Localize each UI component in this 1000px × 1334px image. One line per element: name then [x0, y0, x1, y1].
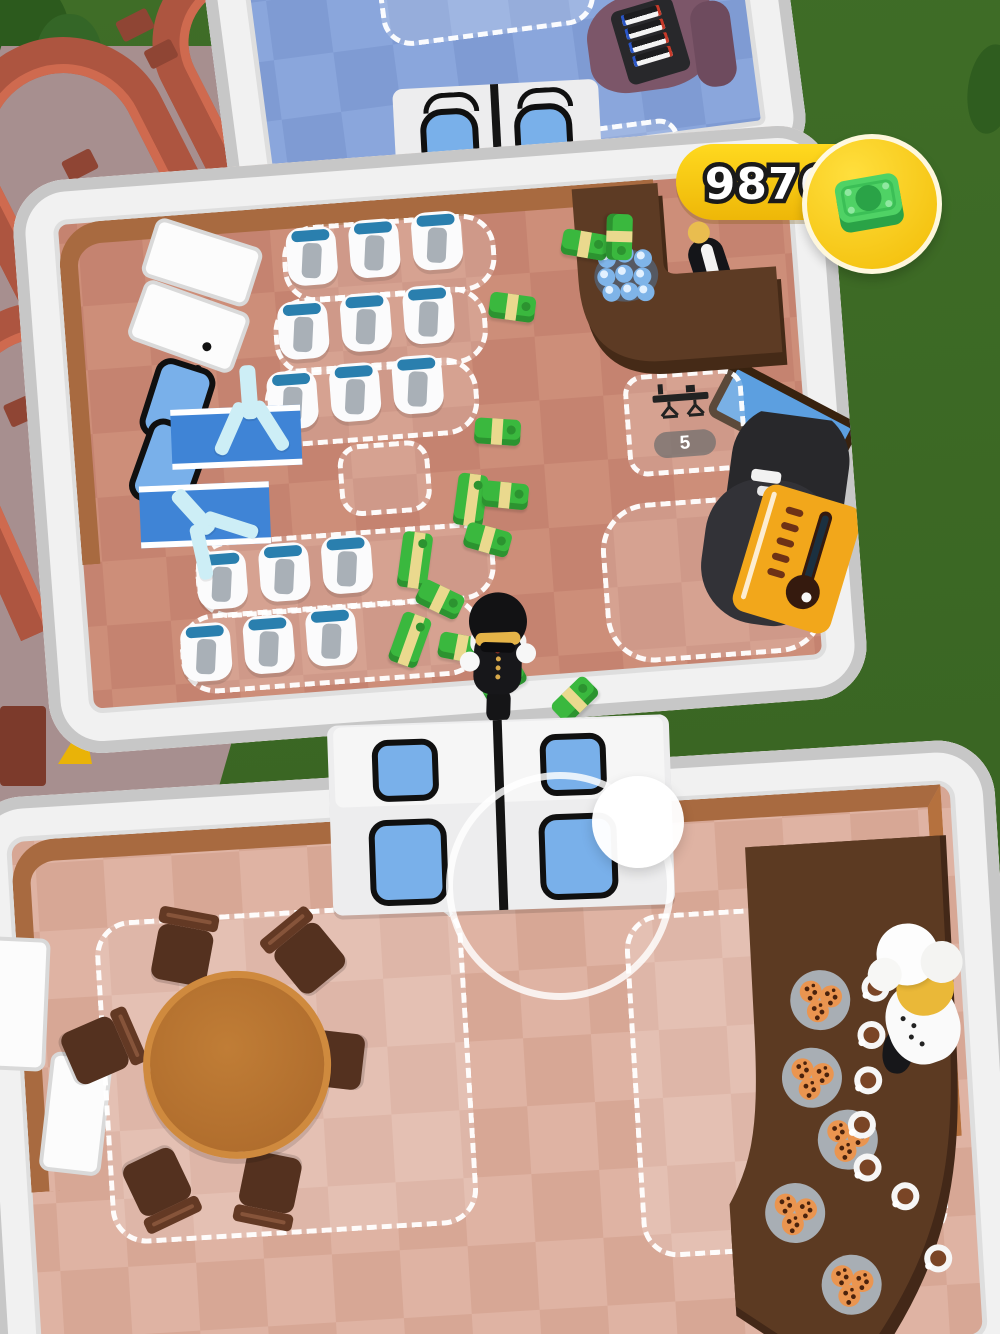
door-window	[368, 818, 449, 907]
hud-currency: 9876	[676, 134, 928, 266]
conductor-character	[452, 595, 542, 727]
joystick-thumb[interactable]	[592, 776, 684, 868]
passenger-seat	[320, 534, 374, 596]
snack-counter	[708, 832, 1000, 1334]
passenger-seat	[242, 614, 296, 676]
passenger-seat	[179, 621, 233, 683]
tree-icon	[962, 41, 1000, 137]
cash-stack-art	[833, 172, 905, 234]
arch-step	[115, 7, 155, 42]
money-stack	[481, 480, 529, 510]
money-stack	[606, 214, 633, 261]
passenger-seat	[285, 225, 339, 287]
dining-chair	[237, 1149, 303, 1215]
passenger-seat	[339, 291, 393, 353]
cash-stack-icon	[829, 161, 909, 241]
currency-coin	[802, 134, 942, 274]
money-stack	[474, 417, 522, 446]
placement-zone	[336, 439, 433, 518]
door-window	[371, 738, 439, 802]
game-screen: 5	[0, 0, 1000, 1334]
passenger-seat	[401, 284, 455, 346]
arch-base-block	[0, 706, 46, 786]
coffee-machine	[680, 404, 871, 641]
passenger-seat	[276, 299, 330, 361]
passenger-seat	[304, 606, 358, 668]
price-label: 5	[679, 432, 691, 454]
passenger-seat	[328, 361, 382, 423]
passenger-seat	[347, 218, 401, 280]
passenger-seat	[410, 210, 464, 272]
conductor-arm	[516, 643, 537, 664]
passenger-seat	[391, 354, 445, 416]
placement-zone	[366, 0, 599, 50]
conductor-buttons	[496, 656, 501, 661]
conductor-hat-brim	[480, 642, 515, 653]
wall-window-frame	[0, 936, 51, 1072]
equipment-rack	[211, 363, 288, 468]
passenger-seat	[257, 541, 311, 603]
